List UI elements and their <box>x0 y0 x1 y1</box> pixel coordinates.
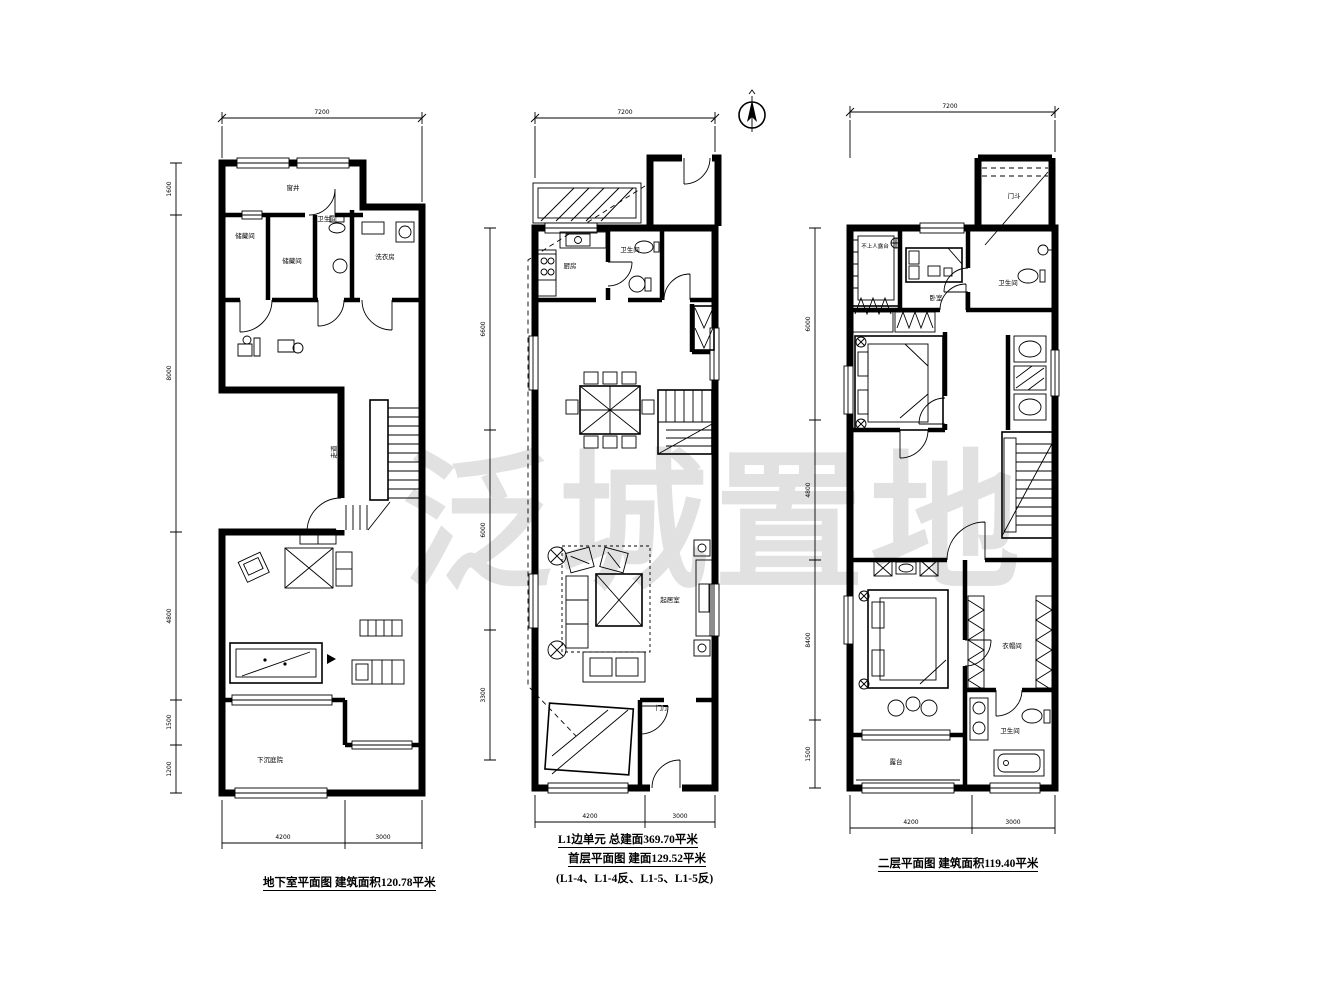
dim-basement-top: 7200 <box>314 109 329 116</box>
room-label-canopy: 门斗 <box>1008 191 1022 200</box>
first-floor-caption-line3: (L1-4、L1-4反、L1-5、L1-5反) <box>556 870 713 886</box>
dim-basement-left-3: 1500 <box>166 714 173 729</box>
basement-plan: 7200 1600 8000 4800 1500 1200 4200 3000 <box>166 109 426 849</box>
dim-first-bottom-1: 3000 <box>672 813 687 820</box>
dim-basement-left-0: 1600 <box>166 181 173 196</box>
dim-second-bottom-0: 4200 <box>903 819 918 826</box>
basement-stairs <box>346 400 420 530</box>
dim-second-top: 7200 <box>942 103 957 110</box>
first-stairs <box>658 390 712 454</box>
room-label-storage-2: 储藏间 <box>282 256 302 265</box>
room-label-second-bath-top: 卫生间 <box>998 278 1018 287</box>
room-label-living: 起居室 <box>660 595 680 604</box>
first-roof-projection <box>528 186 645 736</box>
room-label-second-bath-bottom: 卫生间 <box>1000 726 1020 735</box>
second-roof-terrace <box>852 230 900 306</box>
first-pergola <box>533 183 641 223</box>
room-label-basement-bath: 卫生间 <box>317 214 337 223</box>
first-floor-caption-line1: L1边单元 总建面369.70平米 <box>558 831 698 847</box>
first-living-furniture <box>548 540 712 682</box>
second-master-furniture <box>859 560 948 716</box>
dim-first-top: 7200 <box>617 109 632 116</box>
dim-first-left-1: 6000 <box>480 522 487 537</box>
north-compass-icon <box>739 90 765 132</box>
dim-basement-bottom-1: 3000 <box>375 834 390 841</box>
dim-basement-left-4: 1200 <box>166 761 173 776</box>
room-label-window-well: 窗井 <box>287 183 301 192</box>
dim-second-left-1: 4800 <box>805 482 812 497</box>
room-label-foyer: 门厅 <box>656 703 670 712</box>
second-canopy <box>978 158 1052 245</box>
second-middle-bed <box>855 336 943 430</box>
basement-caption: 地下室平面图 建筑面积120.78平米 <box>263 874 436 890</box>
room-label-kitchen: 厨房 <box>564 261 577 270</box>
dim-first-left-0: 6600 <box>480 321 487 336</box>
second-bottom-bath-fixtures <box>970 698 1050 776</box>
second-bedroom-furniture <box>853 238 962 332</box>
dim-first-bottom-0: 4200 <box>582 813 597 820</box>
second-appliances <box>1014 336 1046 420</box>
first-garage <box>545 703 633 775</box>
room-label-bedroom: 卧室 <box>930 293 944 302</box>
dim-second-left-0: 6000 <box>805 316 812 331</box>
room-label-terrace: 露台 <box>890 757 903 766</box>
basement-furniture <box>230 216 414 684</box>
second-floor-caption: 二层平面图 建筑面积119.40平米 <box>878 855 1038 871</box>
first-dimension-lines <box>484 112 719 828</box>
dim-first-left-2: 3300 <box>480 687 487 702</box>
first-floor-caption-line2: 首层平面图 建面129.52平米 <box>568 850 706 866</box>
room-label-roof-terrace: 不上人露台 <box>861 242 889 250</box>
room-label-first-bath: 卫生间 <box>620 245 640 254</box>
room-label-courtyard: 下沉庭院 <box>257 755 284 764</box>
first-dining-set <box>566 372 654 448</box>
room-label-corridor: 走道 <box>329 445 338 459</box>
room-label-closet: 衣帽间 <box>1002 641 1022 650</box>
room-label-laundry: 洗衣房 <box>375 252 395 261</box>
second-stairs <box>1002 432 1054 538</box>
dim-basement-left-2: 4800 <box>166 608 173 623</box>
dim-basement-left-1: 8000 <box>166 365 173 380</box>
dim-second-left-3: 1500 <box>805 746 812 761</box>
dim-second-bottom-1: 3000 <box>1005 819 1020 826</box>
room-label-storage-1: 储藏间 <box>235 231 255 240</box>
first-floor-plan: 7200 6600 6000 3300 4200 3000 <box>480 109 719 828</box>
dim-basement-bottom-0: 4200 <box>275 834 290 841</box>
second-top-bath-fixtures <box>1018 245 1053 283</box>
second-floor-plan: 7200 6000 4800 8400 1500 4200 3000 <box>805 103 1059 834</box>
dim-second-left-2: 8400 <box>805 632 812 647</box>
